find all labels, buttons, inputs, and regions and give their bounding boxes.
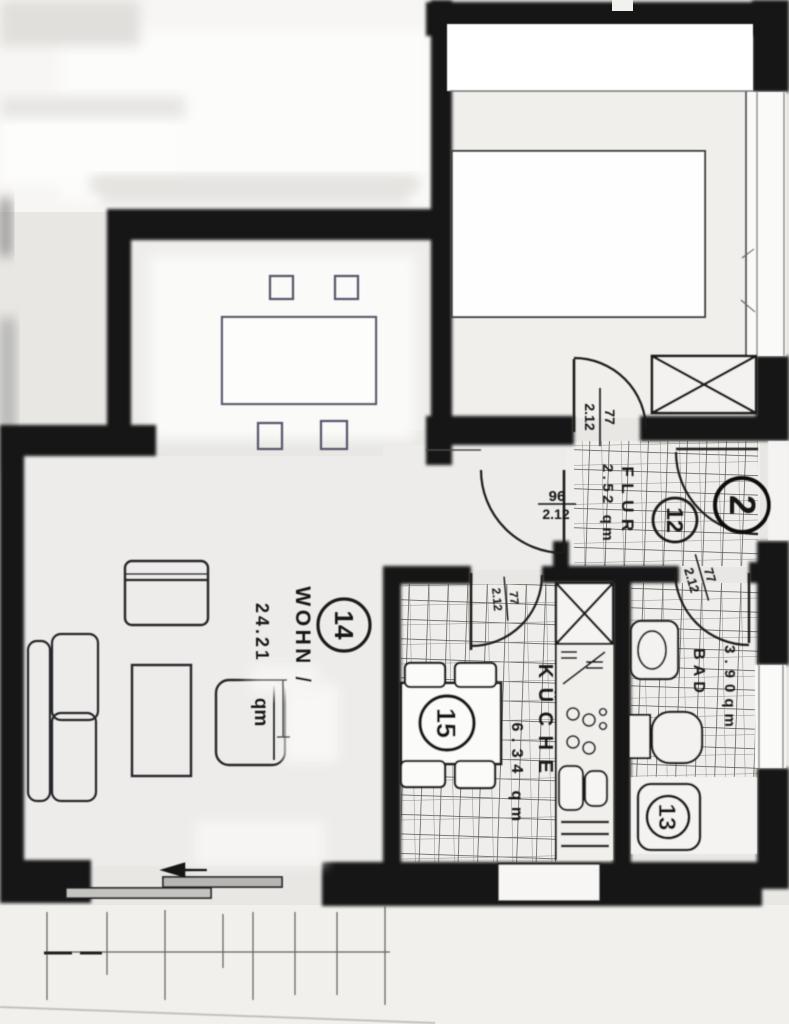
- svg-text:2: 2: [722, 495, 763, 515]
- svg-text:qm: qm: [250, 698, 271, 727]
- svg-text:13: 13: [653, 804, 680, 831]
- svg-text:3.90qm: 3.90qm: [721, 645, 738, 733]
- svg-text:77: 77: [602, 409, 618, 425]
- svg-text:BAD: BAD: [690, 648, 707, 698]
- svg-text:24.21: 24.21: [252, 603, 272, 663]
- svg-text:6.34 qm: 6.34 qm: [508, 722, 525, 827]
- svg-text:96: 96: [549, 488, 566, 505]
- svg-text:FLUR: FLUR: [618, 466, 637, 537]
- svg-text:2.52 qm: 2.52 qm: [599, 464, 616, 544]
- svg-text:WOHN /: WOHN /: [291, 586, 314, 685]
- svg-text:2.12: 2.12: [489, 587, 505, 612]
- svg-text:15: 15: [431, 708, 461, 738]
- svg-text:2.12: 2.12: [542, 506, 569, 522]
- svg-text:77: 77: [506, 591, 521, 606]
- svg-text:KÜCHE: KÜCHE: [534, 664, 557, 783]
- svg-text:2.12: 2.12: [582, 403, 598, 430]
- svg-text:12: 12: [662, 507, 688, 533]
- svg-text:14: 14: [329, 611, 359, 640]
